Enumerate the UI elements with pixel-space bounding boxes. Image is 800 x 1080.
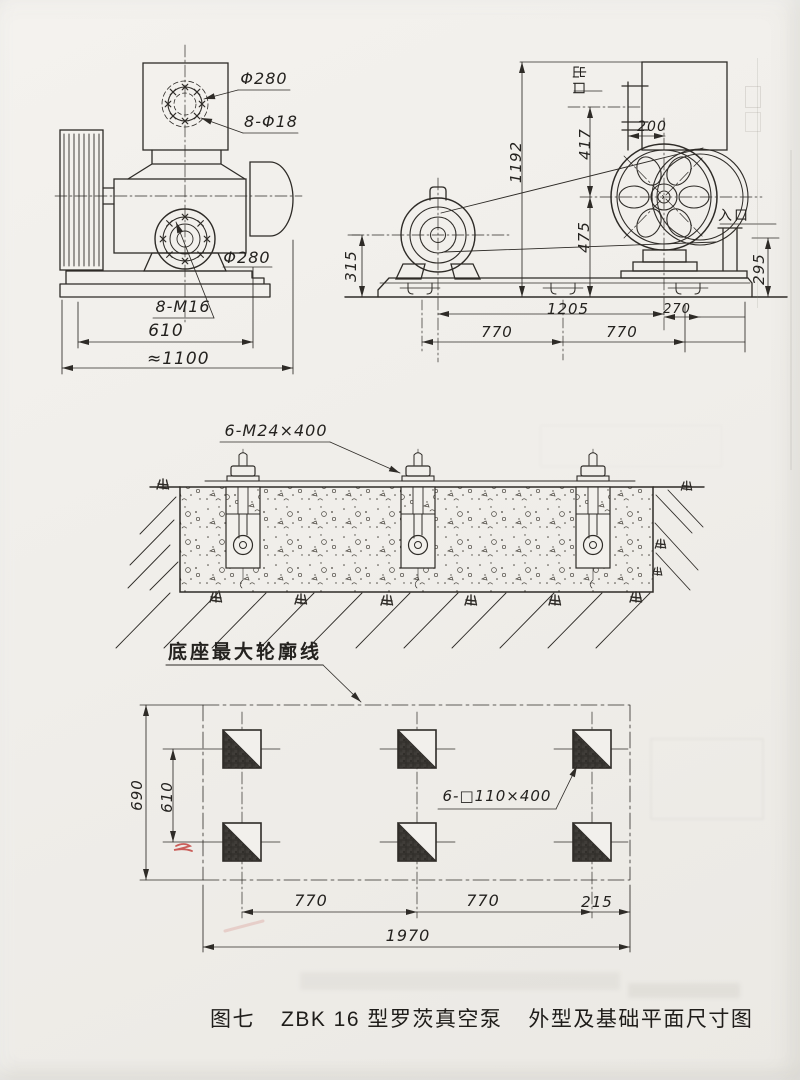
dim-bolt-span-770-right: 770	[592, 322, 652, 342]
foundation-section-drawing	[116, 442, 704, 648]
dim-base-width-610: 610	[136, 321, 196, 341]
dim-plan-total-1970: 1970	[378, 926, 438, 946]
dim-plan-span-770-right: 770	[453, 891, 513, 911]
dim-overall-height-1192: 1192	[506, 132, 526, 192]
figure-title: ZBK 16 型罗茨真空泵	[281, 1003, 502, 1033]
figure-subtitle: 外型及基础平面尺寸图	[528, 1003, 753, 1033]
figure-number: 图七	[210, 1003, 255, 1033]
drawing-linework	[0, 0, 800, 1080]
dim-top-flange-holes: 8-Φ18	[241, 112, 301, 132]
dim-plan-rows-610: 610	[157, 767, 177, 827]
base-outline-note: 底座最大轮廓线	[145, 641, 345, 665]
dim-plan-width-690: 690	[127, 765, 147, 825]
foundation-plan-drawing	[140, 665, 630, 952]
drawing-sheet: Φ280 8-Φ18 Φ280 8-M16 610 ≈1100 出口 200 1…	[0, 0, 800, 1080]
pocket-callout: 6-□110×400	[427, 786, 567, 806]
dim-center-distance-1205: 1205	[538, 299, 598, 319]
red-pencil-smudge	[225, 921, 263, 931]
dim-wheel-height-475: 475	[574, 207, 594, 267]
dim-plan-edge-215: 215	[567, 892, 627, 912]
dim-front-flange-holes: 8-M16	[153, 297, 213, 317]
anchor-bolt-callout: 6-M24×400	[206, 421, 346, 441]
dim-motor-height-315: 315	[341, 236, 361, 296]
figure-caption: 图七 ZBK 16 型罗茨真空泵 外型及基础平面尺寸图	[210, 1003, 753, 1033]
dim-outlet-height-417: 417	[575, 114, 595, 174]
red-pencil-mark	[174, 844, 192, 851]
dim-front-flange-diameter: Φ280	[217, 248, 277, 268]
dim-outlet-offset-200: 200	[622, 117, 682, 137]
inlet-label: 入口	[709, 205, 759, 225]
dim-overhang-270: 270	[647, 300, 707, 320]
dim-plan-span-770-left: 770	[281, 891, 341, 911]
dim-inlet-height-295: 295	[749, 239, 769, 299]
dim-top-flange-diameter: Φ280	[234, 69, 294, 89]
dim-bolt-span-770-left: 770	[467, 322, 527, 342]
dim-overall-width-1100: ≈1100	[147, 349, 207, 369]
outlet-label: 出口	[569, 56, 589, 106]
